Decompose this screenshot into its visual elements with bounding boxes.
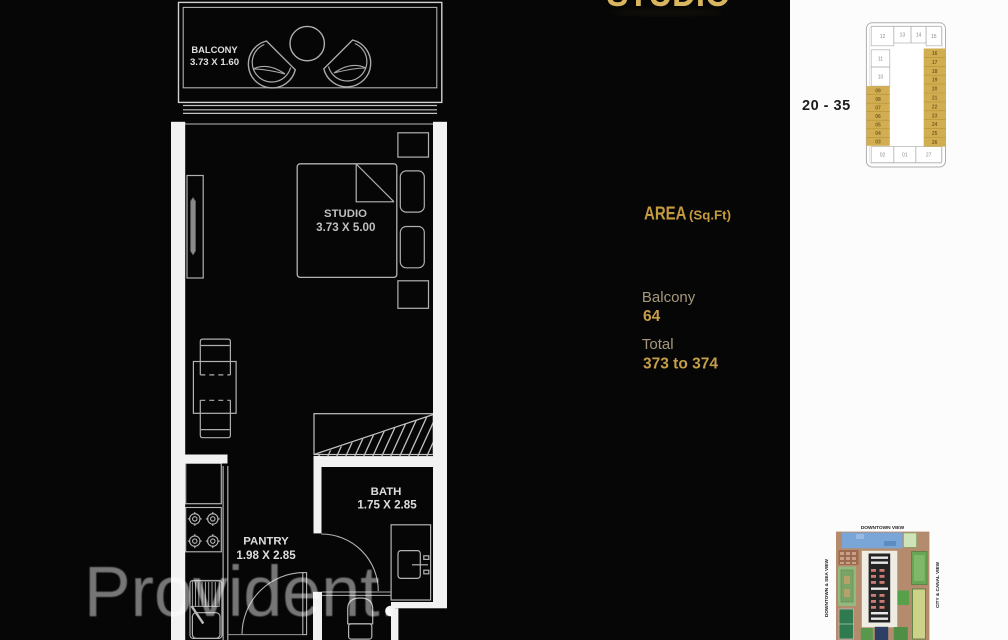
svg-text:18: 18: [932, 69, 938, 75]
svg-text:16: 16: [932, 51, 938, 57]
svg-text:Total: Total: [642, 336, 674, 353]
svg-text:64: 64: [643, 308, 661, 325]
svg-text:06: 06: [875, 114, 881, 120]
svg-text:01: 01: [902, 153, 908, 159]
svg-text:21: 21: [932, 96, 938, 102]
svg-text:04: 04: [875, 131, 881, 137]
svg-text:(Sq.Ft): (Sq.Ft): [689, 209, 731, 223]
svg-text:12: 12: [880, 34, 886, 40]
svg-text:03: 03: [875, 140, 881, 146]
svg-text:17: 17: [932, 60, 938, 66]
svg-text:05: 05: [875, 123, 881, 129]
svg-text:3.73 X 1.60: 3.73 X 1.60: [190, 57, 239, 68]
svg-text:BATH: BATH: [371, 486, 402, 498]
svg-text:26: 26: [932, 140, 938, 146]
svg-text:DOWNTOWN & SEA VIEW: DOWNTOWN & SEA VIEW: [824, 558, 829, 617]
svg-text:07: 07: [875, 106, 881, 112]
svg-text:373 to 374: 373 to 374: [643, 356, 718, 373]
svg-text:STUDIO: STUDIO: [324, 208, 367, 220]
svg-text:02: 02: [880, 153, 886, 159]
svg-text:PANTRY: PANTRY: [243, 536, 289, 548]
svg-text:22: 22: [932, 104, 938, 110]
svg-text:15: 15: [931, 34, 937, 40]
svg-text:Balcony: Balcony: [642, 289, 696, 306]
svg-text:BALCONY: BALCONY: [191, 44, 238, 55]
svg-text:19: 19: [932, 78, 938, 84]
svg-text:14: 14: [916, 33, 922, 39]
svg-text:Provident.: Provident.: [84, 553, 399, 632]
svg-text:09: 09: [875, 89, 881, 95]
svg-text:24: 24: [932, 122, 938, 128]
svg-text:25: 25: [932, 131, 938, 137]
svg-text:10: 10: [878, 75, 884, 81]
svg-text:23: 23: [932, 113, 938, 119]
svg-text:20 - 35: 20 - 35: [802, 98, 851, 114]
svg-text:CITY & CANAL VIEW: CITY & CANAL VIEW: [935, 561, 940, 608]
svg-text:3.73 X 5.00: 3.73 X 5.00: [316, 221, 375, 234]
svg-text:1.75 X 2.85: 1.75 X 2.85: [357, 499, 417, 512]
svg-text:AREA: AREA: [644, 204, 687, 224]
svg-text:11: 11: [878, 57, 883, 63]
svg-text:27: 27: [926, 153, 932, 159]
svg-text:20: 20: [932, 87, 938, 93]
svg-text:DOWNTOWN VIEW: DOWNTOWN VIEW: [861, 525, 905, 531]
svg-text:08: 08: [875, 97, 881, 103]
svg-text:13: 13: [900, 33, 906, 39]
